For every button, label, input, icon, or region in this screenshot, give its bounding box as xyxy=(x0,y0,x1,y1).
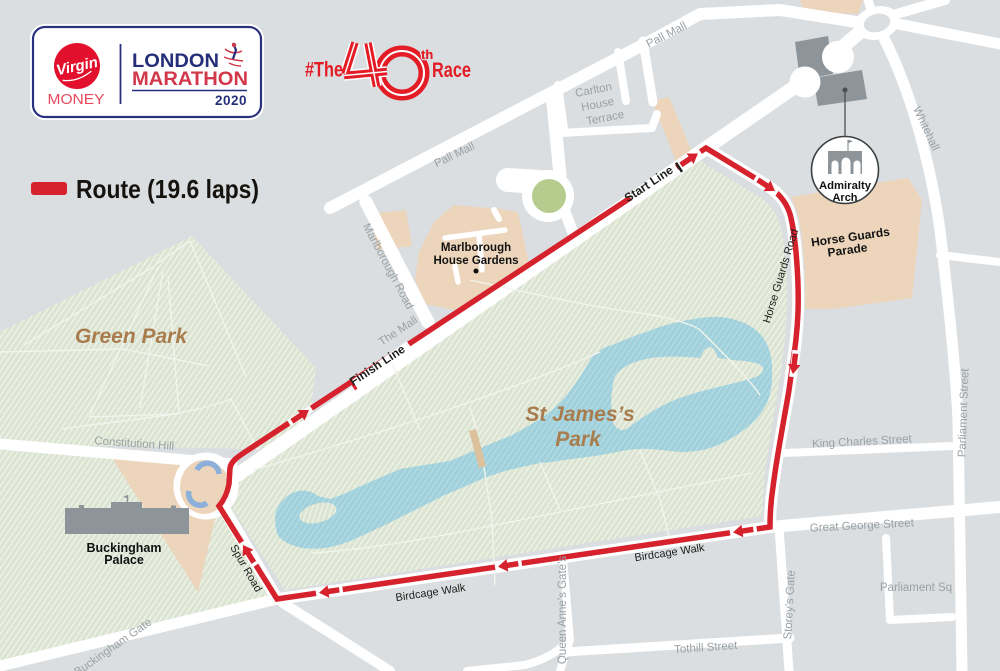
svg-text:MARATHON: MARATHON xyxy=(132,69,248,90)
svg-text:Palace: Palace xyxy=(104,553,144,567)
svg-text:Parliament Sq: Parliament Sq xyxy=(880,582,952,594)
svg-text:2020: 2020 xyxy=(215,93,247,108)
svg-text:Queen Anne’s Gate’s: Queen Anne’s Gate’s xyxy=(557,556,569,665)
svg-text:MONEY: MONEY xyxy=(48,92,105,108)
svg-text:Marlborough: Marlborough xyxy=(441,242,511,254)
svg-text:St James’s: St James’s xyxy=(525,403,634,426)
svg-text:Admiralty: Admiralty xyxy=(819,180,872,192)
svg-text:Arch: Arch xyxy=(832,192,857,204)
svg-text:Green Park: Green Park xyxy=(75,325,188,348)
svg-text:Race: Race xyxy=(432,58,471,82)
svg-text:Route (19.6 laps): Route (19.6 laps) xyxy=(76,174,259,204)
svg-text:House Gardens: House Gardens xyxy=(434,255,519,267)
svg-text:#The: #The xyxy=(305,58,343,82)
svg-text:Park: Park xyxy=(555,428,602,451)
